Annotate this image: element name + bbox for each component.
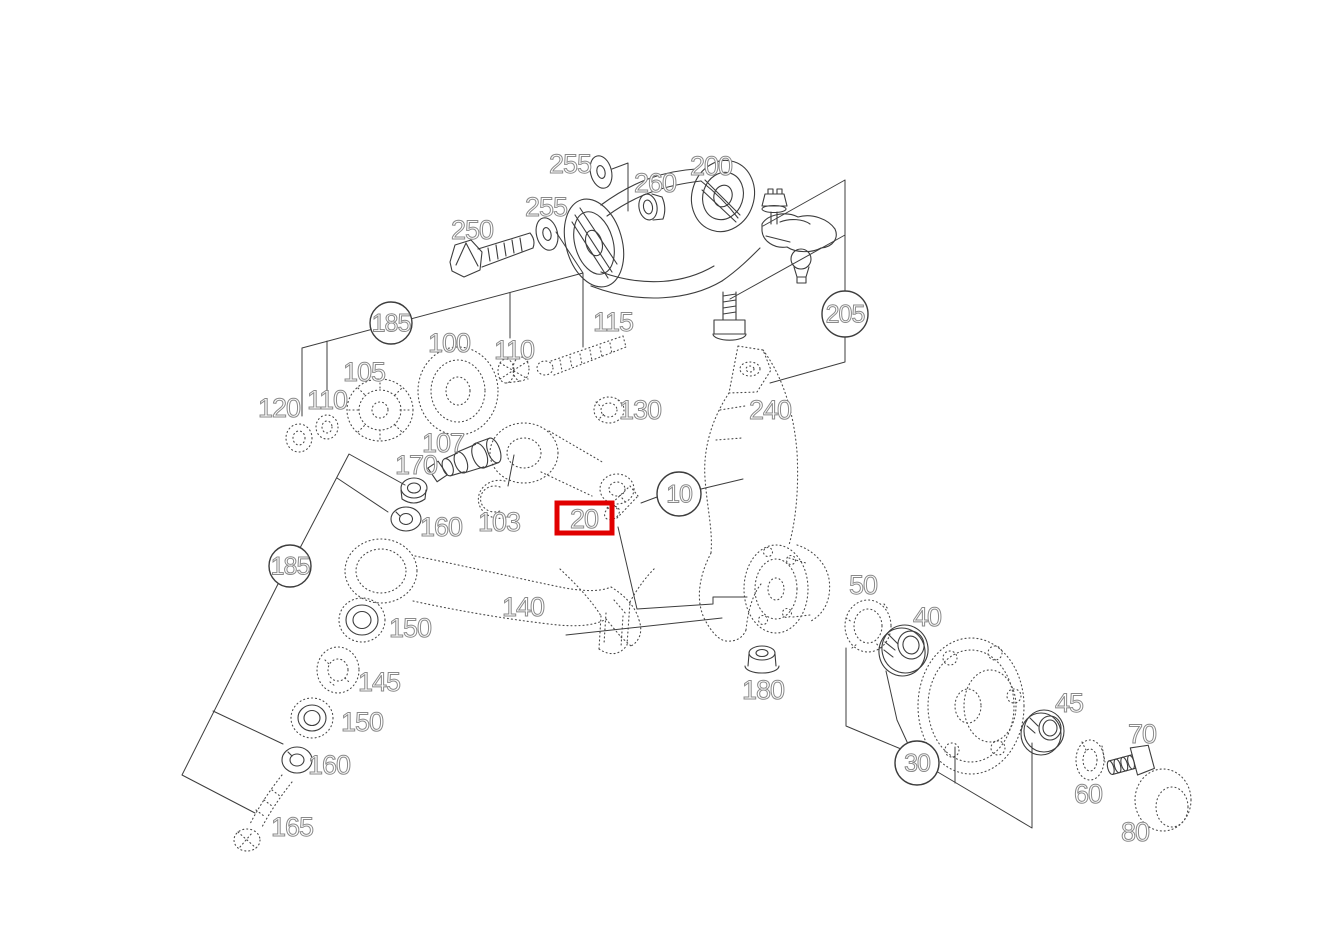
part-label-180[interactable]: 180 <box>742 675 784 705</box>
part-label-120[interactable]: 120 <box>258 393 300 423</box>
part-label-80[interactable]: 80 <box>1121 817 1149 847</box>
part-label-260[interactable]: 260 <box>634 168 676 198</box>
part-label-145[interactable]: 145 <box>358 667 400 697</box>
bolt-70-drawing <box>1104 743 1155 782</box>
stud-bolt-under-arm-drawing <box>713 292 746 340</box>
group-label-185[interactable]: 185 <box>271 553 310 581</box>
part-label-200[interactable]: 200 <box>690 151 732 181</box>
ring-120-drawing <box>286 424 312 452</box>
lock-ring-50-drawing <box>845 600 891 652</box>
nut-170-drawing <box>401 478 427 503</box>
part-label-45[interactable]: 45 <box>1055 688 1083 718</box>
part-label-130[interactable]: 130 <box>619 395 661 425</box>
part-label-150[interactable]: 150 <box>389 613 431 643</box>
bolt-115-drawing <box>537 336 626 375</box>
part-label-110[interactable]: 110 <box>307 385 347 415</box>
group-label-185[interactable]: 185 <box>372 310 411 338</box>
ring-145-drawing <box>317 647 359 693</box>
strut-fork-drawing <box>560 568 655 654</box>
part-label-255[interactable]: 255 <box>525 192 567 222</box>
part-label-60[interactable]: 60 <box>1074 779 1102 809</box>
part-label-140[interactable]: 140 <box>502 592 544 622</box>
part-label-100[interactable]: 100 <box>428 328 470 358</box>
part-label-250[interactable]: 250 <box>451 215 493 245</box>
group-label-10[interactable]: 10 <box>666 481 692 509</box>
parts-diagram: 2552602002552501151001101051101201302401… <box>0 0 1326 938</box>
ball-joint-205-drawing <box>762 189 836 283</box>
part-label-103[interactable]: 103 <box>478 507 520 537</box>
part-label-150[interactable]: 150 <box>341 707 383 737</box>
lock-washer-60-drawing <box>1076 740 1105 780</box>
bushing-150-upper-drawing <box>339 598 385 642</box>
part-label-240[interactable]: 240 <box>749 395 791 425</box>
part-label-highlighted-20[interactable]: 20 <box>570 504 598 534</box>
part-label-115[interactable]: 115 <box>593 307 633 337</box>
washer-255-upper-drawing <box>587 153 615 190</box>
mount-assembly-100-drawing <box>418 347 634 504</box>
part-label-170[interactable]: 170 <box>395 450 437 480</box>
nut-180-drawing <box>745 646 779 673</box>
part-label-160[interactable]: 160 <box>308 750 350 780</box>
washer-160-upper-drawing <box>391 507 421 531</box>
part-label-105[interactable]: 105 <box>343 357 385 387</box>
part-label-110[interactable]: 110 <box>494 335 534 365</box>
part-label-160[interactable]: 160 <box>420 512 462 542</box>
group-label-30[interactable]: 30 <box>904 750 930 778</box>
part-label-50[interactable]: 50 <box>849 570 877 600</box>
part-label-165[interactable]: 165 <box>271 812 313 842</box>
group-label-205[interactable]: 205 <box>826 301 865 329</box>
fence-lines <box>182 163 1032 828</box>
ring-110-left-drawing <box>316 415 338 439</box>
part-label-255[interactable]: 255 <box>549 149 591 179</box>
bushing-150-lower-drawing <box>291 698 333 738</box>
part-label-40[interactable]: 40 <box>913 602 941 632</box>
part-label-70[interactable]: 70 <box>1128 719 1156 749</box>
gear-ring-105-drawing <box>347 379 413 441</box>
